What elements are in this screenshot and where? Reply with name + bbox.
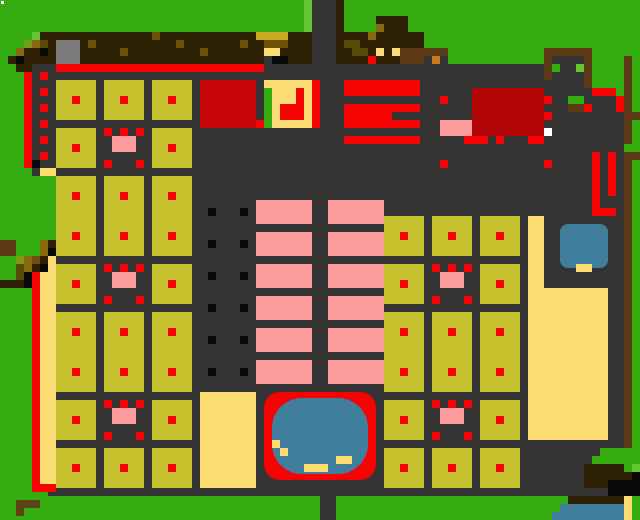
station-dots-tile bbox=[136, 264, 144, 272]
table-dots-tile bbox=[496, 232, 504, 240]
pond-main-tile bbox=[272, 398, 368, 474]
table-dots-tile bbox=[168, 96, 176, 104]
tables-tile bbox=[152, 176, 192, 256]
pond-small-tile bbox=[560, 224, 608, 268]
right-yard-tile bbox=[568, 104, 584, 112]
left-strip-tile bbox=[32, 264, 40, 272]
table-dots-tile bbox=[400, 368, 408, 376]
station-dots-tile bbox=[104, 160, 112, 168]
table-dots-tile bbox=[120, 232, 128, 240]
right-yard-tile bbox=[624, 112, 640, 120]
seat-dots-tile bbox=[208, 336, 216, 344]
top-band-decor-tile bbox=[376, 48, 384, 56]
station-dots-tile bbox=[432, 264, 440, 272]
bunks-tile bbox=[256, 328, 312, 352]
tables-tile bbox=[480, 312, 520, 392]
bottom-right-corner-tile bbox=[560, 504, 624, 520]
left-wall-tile bbox=[32, 160, 40, 168]
table-dots-tile bbox=[168, 328, 176, 336]
left-strip-tile bbox=[24, 264, 32, 272]
pink-stations-tile bbox=[112, 272, 136, 288]
bottom-grass-tile bbox=[320, 488, 336, 520]
table-dots-tile bbox=[120, 96, 128, 104]
left-wall-tile bbox=[40, 152, 48, 160]
top-band-decor-tile bbox=[200, 48, 208, 56]
right-yard-tile bbox=[632, 152, 640, 160]
bottom-right-corner-tile bbox=[632, 472, 640, 496]
table-dots-tile bbox=[496, 464, 504, 472]
bunks-tile bbox=[256, 200, 312, 224]
right-yard-tile bbox=[608, 152, 616, 196]
left-strip-tile bbox=[48, 256, 56, 264]
station-dots-tile bbox=[136, 160, 144, 168]
left-strip-tile bbox=[32, 256, 40, 264]
top-band-decor-tile bbox=[352, 48, 368, 56]
left-strip-tile bbox=[16, 264, 24, 272]
station-dots-tile bbox=[104, 264, 112, 272]
corner-tree-tile bbox=[8, 56, 16, 64]
table-dots-tile bbox=[120, 328, 128, 336]
right-yard-tile bbox=[624, 152, 632, 448]
station-dots-tile bbox=[448, 264, 456, 272]
bunks-tile bbox=[328, 200, 384, 224]
table-dots-tile bbox=[400, 416, 408, 424]
table-dots-tile bbox=[496, 328, 504, 336]
dark-red-hall-tile bbox=[544, 112, 552, 120]
top-band-decor-tile bbox=[368, 32, 376, 40]
top-band-decor-tile bbox=[392, 48, 400, 56]
bottom-right-corner-tile bbox=[568, 496, 624, 504]
left-strip-tile bbox=[16, 272, 24, 280]
left-strip-tile bbox=[48, 240, 56, 248]
seat-dots-tile bbox=[208, 304, 216, 312]
table-dots-tile bbox=[496, 416, 504, 424]
top-band-decor-tile bbox=[432, 56, 440, 64]
dark-red-hall-tile bbox=[472, 88, 544, 136]
tables-tile bbox=[104, 176, 144, 256]
red-shelves-tile bbox=[344, 112, 392, 120]
station-dots-tile bbox=[104, 432, 112, 440]
left-strip-tile bbox=[24, 272, 32, 280]
right-yard-tile bbox=[544, 48, 592, 56]
table-dots-tile bbox=[120, 192, 128, 200]
pond-main-tile bbox=[336, 456, 352, 464]
pink-stations-tile bbox=[440, 408, 464, 424]
table-dots-tile bbox=[72, 416, 80, 424]
corner-tree-tile bbox=[24, 56, 40, 64]
tables-tile bbox=[384, 312, 424, 392]
pond-main-tile bbox=[304, 464, 328, 472]
left-wall-tile bbox=[40, 104, 48, 112]
bunks-tile bbox=[328, 296, 384, 320]
shrine-tile bbox=[264, 88, 272, 128]
top-wall-band-tile bbox=[336, 0, 344, 64]
table-dots-tile bbox=[72, 96, 80, 104]
table-dots-tile bbox=[400, 464, 408, 472]
right-yard-tile bbox=[576, 64, 584, 72]
table-dots-tile bbox=[72, 464, 80, 472]
top-band-decor-tile bbox=[152, 32, 160, 40]
left-strip-tile bbox=[40, 264, 48, 272]
left-wall-tile bbox=[40, 88, 48, 96]
dark-red-hall-tile bbox=[496, 136, 504, 144]
pink-stations-tile bbox=[440, 272, 464, 288]
bottom-right-corner-tile bbox=[592, 456, 640, 464]
station-dots-tile bbox=[432, 296, 440, 304]
dark-red-hall-tile bbox=[440, 120, 472, 136]
right-yard-tile bbox=[616, 96, 624, 112]
top-band-decor-tile bbox=[376, 24, 384, 32]
right-yard-tile bbox=[584, 56, 592, 88]
seat-dots-tile bbox=[208, 368, 216, 376]
right-yard-tile bbox=[552, 64, 560, 72]
pond-small-tile bbox=[576, 264, 592, 272]
table-dots-tile bbox=[120, 368, 128, 376]
shrine-tile bbox=[296, 88, 304, 104]
station-dots-tile bbox=[104, 128, 112, 136]
top-band-decor-tile bbox=[56, 40, 80, 64]
right-yard-tile bbox=[624, 56, 632, 144]
table-dots-tile bbox=[72, 328, 80, 336]
left-strip-tile bbox=[0, 280, 24, 288]
floor-tile bbox=[552, 56, 584, 88]
station-dots-tile bbox=[104, 296, 112, 304]
right-yard-tile bbox=[544, 56, 552, 80]
station-dots-tile bbox=[432, 432, 440, 440]
game-map-canvas[interactable] bbox=[0, 0, 640, 520]
bunks-tile bbox=[328, 264, 384, 288]
bottom-right-corner-tile bbox=[584, 472, 632, 480]
corner-tree-tile bbox=[40, 48, 48, 56]
seat-dots-tile bbox=[208, 240, 216, 248]
top-band-decor-tile bbox=[256, 32, 288, 40]
sand-paths-tile bbox=[200, 392, 256, 488]
station-dots-tile bbox=[448, 400, 456, 408]
corner-tree-tile bbox=[24, 40, 32, 48]
left-wall-tile bbox=[40, 136, 48, 144]
left-wall-tile bbox=[40, 120, 48, 128]
station-dots-tile bbox=[120, 264, 128, 272]
table-dots-tile bbox=[400, 280, 408, 288]
sand-paths-tile bbox=[528, 288, 608, 440]
left-strip-tile bbox=[40, 484, 56, 492]
bunks-tile bbox=[256, 360, 312, 384]
floor-tile bbox=[48, 488, 584, 496]
left-strip-tile bbox=[24, 280, 32, 288]
right-yard-tile bbox=[600, 208, 616, 216]
tables-tile bbox=[56, 312, 96, 392]
red-shelves-tile bbox=[344, 136, 420, 144]
seat-dots-tile bbox=[208, 272, 216, 280]
bunks-tile bbox=[328, 328, 384, 352]
dark-red-hall-tile bbox=[544, 160, 552, 168]
table-dots-tile bbox=[400, 328, 408, 336]
corner-tree-tile bbox=[40, 40, 48, 48]
tables-tile bbox=[56, 176, 96, 256]
cursor-marker-tile bbox=[1, 1, 4, 4]
red-hall-tile bbox=[200, 80, 256, 128]
left-strip-tile bbox=[16, 500, 40, 508]
seat-dots-tile bbox=[240, 336, 248, 344]
seat-dots-tile bbox=[240, 208, 248, 216]
station-dots-tile bbox=[136, 432, 144, 440]
seat-dots-tile bbox=[240, 368, 248, 376]
left-strip-tile bbox=[32, 272, 40, 492]
bunks-tile bbox=[256, 296, 312, 320]
left-strip-tile bbox=[16, 256, 24, 264]
left-strip-tile bbox=[40, 248, 48, 256]
left-strip-tile bbox=[48, 248, 56, 256]
corner-tree-tile bbox=[32, 32, 40, 40]
red-shelves-tile bbox=[344, 104, 420, 112]
table-dots-tile bbox=[448, 464, 456, 472]
top-band-decor-tile bbox=[344, 40, 360, 48]
right-yard-tile bbox=[568, 96, 584, 104]
table-dots-tile bbox=[168, 280, 176, 288]
station-dots-tile bbox=[464, 264, 472, 272]
left-wall-tile bbox=[24, 72, 32, 168]
top-band-decor-tile bbox=[264, 40, 288, 48]
bunks-tile bbox=[328, 232, 384, 256]
right-yard-tile bbox=[592, 88, 616, 96]
left-strip-tile bbox=[24, 256, 32, 264]
bottom-right-corner-tile bbox=[624, 496, 632, 520]
station-dots-tile bbox=[120, 128, 128, 136]
dark-red-hall-tile bbox=[528, 136, 544, 144]
station-dots-tile bbox=[464, 296, 472, 304]
dark-red-hall-tile bbox=[544, 96, 552, 104]
red-shelves-tile bbox=[344, 120, 420, 128]
top-band-decor-tile bbox=[240, 40, 248, 48]
station-dots-tile bbox=[120, 400, 128, 408]
left-strip-tile bbox=[0, 248, 16, 256]
corner-tree-tile bbox=[32, 40, 40, 48]
top-band-decor-tile bbox=[368, 56, 376, 64]
dark-red-hall-tile bbox=[464, 136, 488, 144]
station-dots-tile bbox=[136, 400, 144, 408]
table-dots-tile bbox=[72, 368, 80, 376]
bottom-right-corner-tile bbox=[600, 448, 640, 456]
station-dots-tile bbox=[464, 432, 472, 440]
bunks-tile bbox=[328, 360, 384, 384]
left-wall-tile bbox=[40, 168, 56, 176]
top-band-decor-tile bbox=[264, 56, 272, 64]
pond-main-tile bbox=[272, 440, 280, 448]
table-dots-tile bbox=[72, 232, 80, 240]
corner-tree-tile bbox=[16, 56, 24, 64]
dark-red-hall-tile bbox=[440, 160, 448, 168]
corner-tree-tile bbox=[24, 48, 40, 56]
shrine-tile bbox=[280, 104, 304, 120]
left-wall-tile bbox=[40, 72, 48, 80]
station-dots-tile bbox=[432, 400, 440, 408]
table-dots-tile bbox=[120, 464, 128, 472]
table-dots-tile bbox=[72, 280, 80, 288]
red-hall-tile bbox=[256, 120, 264, 128]
left-strip-tile bbox=[40, 256, 48, 264]
dark-red-hall-tile bbox=[440, 96, 448, 104]
seat-dots-tile bbox=[208, 208, 216, 216]
table-dots-tile bbox=[448, 368, 456, 376]
shrine-tile bbox=[312, 80, 320, 128]
top-band-decor-tile bbox=[304, 0, 312, 32]
table-dots-tile bbox=[168, 368, 176, 376]
top-band-decor-tile bbox=[400, 48, 448, 56]
tables-tile bbox=[152, 312, 192, 392]
left-strip-tile bbox=[16, 508, 24, 516]
right-yard-tile bbox=[584, 104, 592, 112]
table-dots-tile bbox=[168, 192, 176, 200]
table-dots-tile bbox=[448, 232, 456, 240]
pond-main-tile bbox=[280, 448, 288, 456]
bottom-right-corner-tile bbox=[632, 464, 640, 472]
top-band-decor-tile bbox=[88, 40, 96, 48]
table-dots-tile bbox=[168, 144, 176, 152]
table-dots-tile bbox=[168, 416, 176, 424]
right-yard-tile bbox=[592, 152, 600, 216]
tables-tile bbox=[104, 312, 144, 392]
bunks-tile bbox=[256, 232, 312, 256]
table-dots-tile bbox=[496, 368, 504, 376]
red-shelves-tile bbox=[344, 80, 420, 96]
station-dots-tile bbox=[136, 128, 144, 136]
top-band-decor-tile bbox=[272, 56, 288, 64]
top-band-decor-tile bbox=[120, 48, 128, 56]
table-dots-tile bbox=[400, 232, 408, 240]
dark-red-hall-tile bbox=[544, 128, 552, 136]
floor-tile bbox=[312, 0, 336, 64]
seat-dots-tile bbox=[240, 240, 248, 248]
pink-stations-tile bbox=[112, 136, 136, 152]
top-band-decor-tile bbox=[400, 56, 424, 64]
bottom-right-corner-tile bbox=[552, 512, 560, 520]
game-screen bbox=[0, 0, 640, 520]
bunks-tile bbox=[256, 264, 312, 288]
top-band-decor-tile bbox=[264, 48, 280, 56]
left-strip-tile bbox=[40, 240, 48, 248]
left-strip-tile bbox=[40, 264, 56, 484]
pink-stations-tile bbox=[112, 408, 136, 424]
table-dots-tile bbox=[168, 232, 176, 240]
table-dots-tile bbox=[496, 280, 504, 288]
station-dots-tile bbox=[136, 296, 144, 304]
bottom-right-corner-tile bbox=[584, 464, 624, 472]
seat-dots-tile bbox=[240, 304, 248, 312]
corner-tree-tile bbox=[16, 48, 24, 56]
left-strip-tile bbox=[0, 240, 16, 248]
bottom-right-corner-tile bbox=[608, 480, 632, 496]
red-carpet-strip-tile bbox=[56, 64, 264, 72]
station-dots-tile bbox=[104, 400, 112, 408]
right-yard-tile bbox=[616, 88, 624, 96]
corner-tree-tile bbox=[16, 64, 32, 72]
seat-dots-tile bbox=[240, 272, 248, 280]
tables-tile bbox=[432, 312, 472, 392]
right-yard-tile bbox=[592, 64, 624, 88]
sand-paths-tile bbox=[528, 216, 544, 288]
table-dots-tile bbox=[448, 328, 456, 336]
bottom-right-corner-tile bbox=[584, 480, 608, 488]
table-dots-tile bbox=[168, 464, 176, 472]
station-dots-tile bbox=[464, 400, 472, 408]
table-dots-tile bbox=[72, 144, 80, 152]
table-dots-tile bbox=[72, 192, 80, 200]
top-band-decor-tile bbox=[176, 40, 184, 48]
